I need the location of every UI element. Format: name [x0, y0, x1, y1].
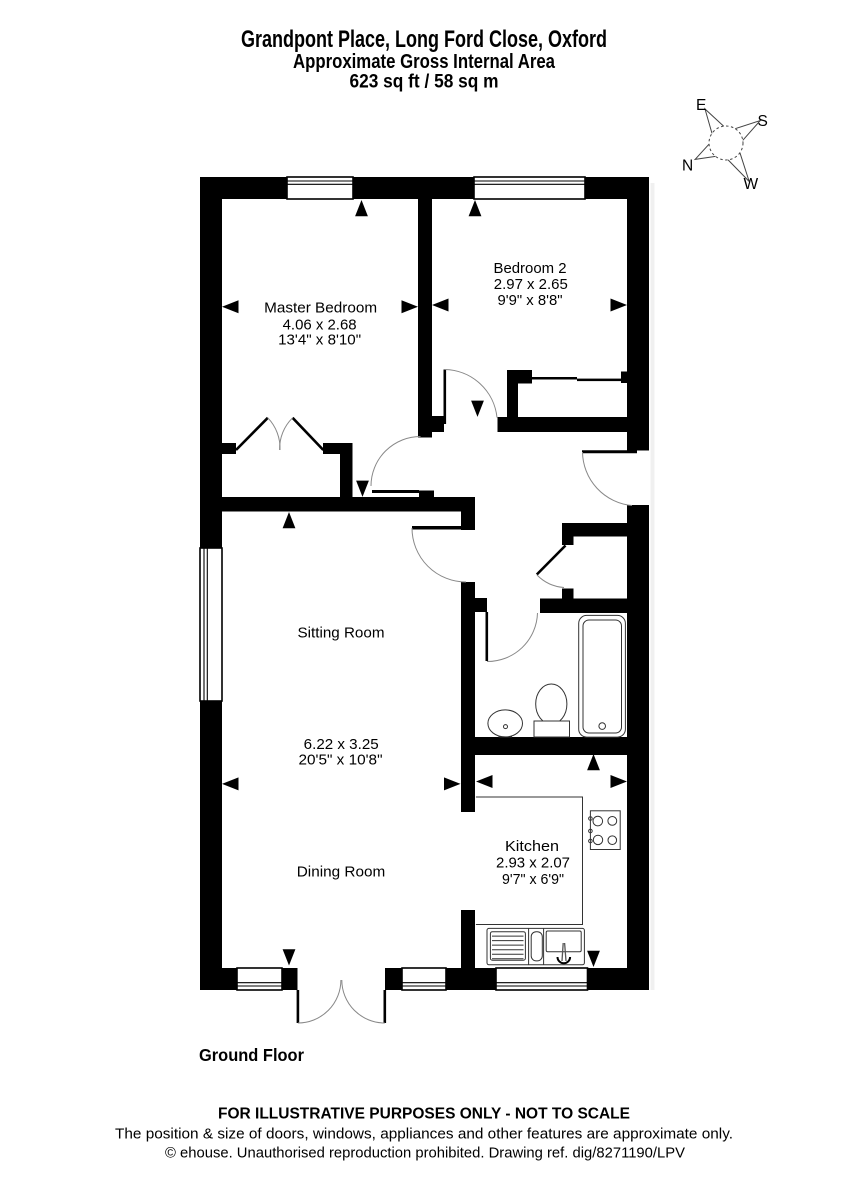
svg-text:Ground Floor: Ground Floor [199, 1045, 304, 1065]
svg-text:FOR ILLUSTRATIVE PURPOSES ONLY: FOR ILLUSTRATIVE PURPOSES ONLY - NOT TO … [218, 1106, 630, 1123]
svg-text:9'7" x 6'9": 9'7" x 6'9" [502, 871, 564, 888]
svg-text:623 sq ft / 58 sq m: 623 sq ft / 58 sq m [350, 71, 499, 93]
svg-text:The position & size of doors,: The position & size of doors, windows, a… [115, 1126, 733, 1143]
svg-text:9'9" x 8'8": 9'9" x 8'8" [498, 292, 563, 309]
svg-text:6.22 x 3.25: 6.22 x 3.25 [304, 736, 379, 753]
svg-text:E: E [696, 97, 706, 114]
svg-text:S: S [758, 113, 768, 130]
svg-text:2.97 x 2.65: 2.97 x 2.65 [494, 276, 568, 293]
svg-text:© ehouse. Unauthorised reprodu: © ehouse. Unauthorised reproduction proh… [165, 1145, 685, 1162]
svg-text:20'5" x 10'8": 20'5" x 10'8" [299, 752, 383, 769]
svg-text:Grandpont Place, Long Ford Clo: Grandpont Place, Long Ford Close, Oxford [241, 26, 607, 53]
svg-text:Kitchen: Kitchen [505, 838, 559, 855]
svg-text:Master Bedroom: Master Bedroom [264, 299, 377, 316]
svg-text:Dining Room: Dining Room [297, 864, 386, 881]
svg-text:2.93 x 2.07: 2.93 x 2.07 [496, 854, 570, 871]
svg-text:Sitting Room: Sitting Room [298, 625, 385, 642]
svg-text:W: W [744, 176, 759, 193]
svg-text:13'4" x 8'10": 13'4" x 8'10" [278, 332, 361, 349]
svg-text:N: N [682, 158, 693, 175]
svg-text:Bedroom 2: Bedroom 2 [494, 260, 567, 277]
